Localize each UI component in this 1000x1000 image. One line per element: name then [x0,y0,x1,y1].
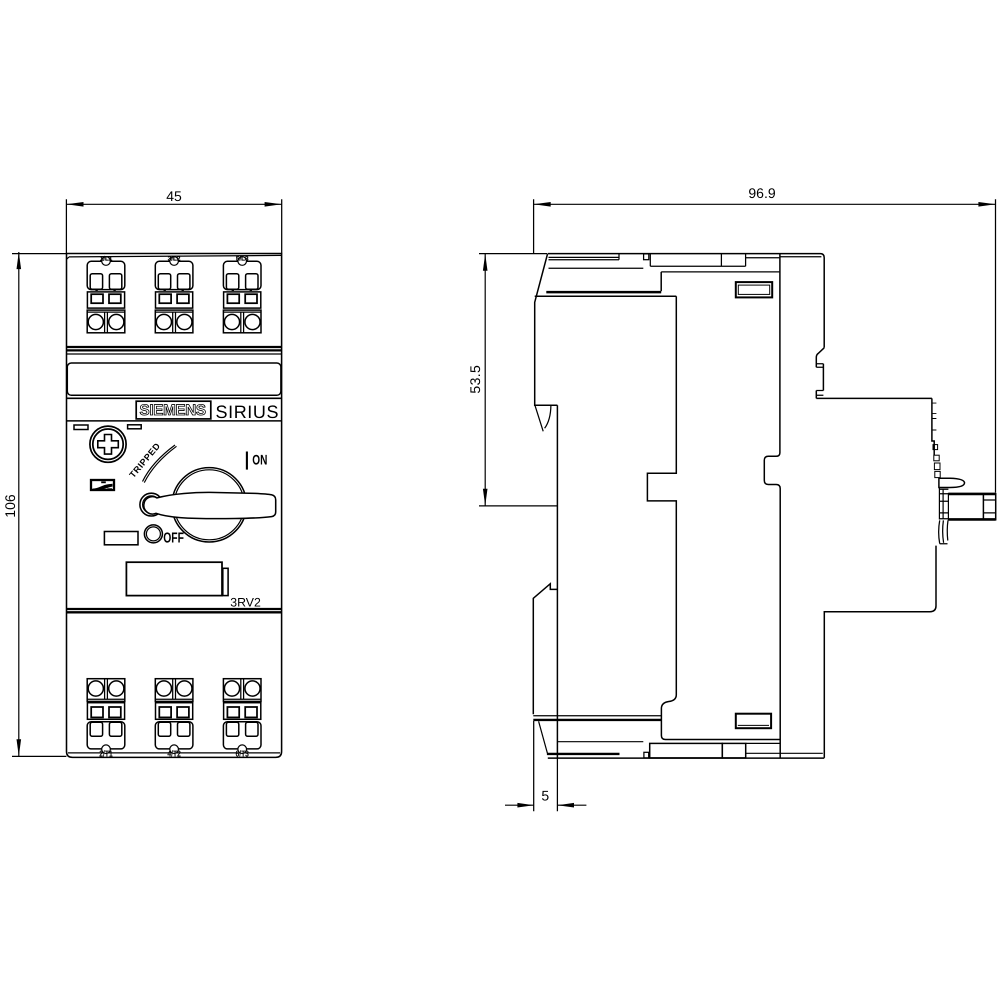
svg-text:OFF: OFF [163,530,184,546]
svg-text:3RV2: 3RV2 [230,595,261,609]
svg-text:5: 5 [541,788,549,804]
svg-text:53.5: 53.5 [467,365,483,394]
svg-text:1/L1: 1/L1 [100,256,113,263]
svg-text:4/T2: 4/T2 [167,749,181,759]
svg-text:45: 45 [166,188,182,204]
svg-text:ON: ON [252,451,267,467]
svg-text:106: 106 [2,494,18,518]
svg-text:6/T3: 6/T3 [235,749,249,759]
svg-text:5/L3: 5/L3 [236,256,249,263]
svg-text:3/L2: 3/L2 [168,256,181,263]
svg-text:2/T1: 2/T1 [99,749,113,759]
svg-text:96.9: 96.9 [748,185,775,201]
svg-text:SIEMENS: SIEMENS [140,402,206,419]
svg-text:SIRIUS: SIRIUS [216,402,280,422]
